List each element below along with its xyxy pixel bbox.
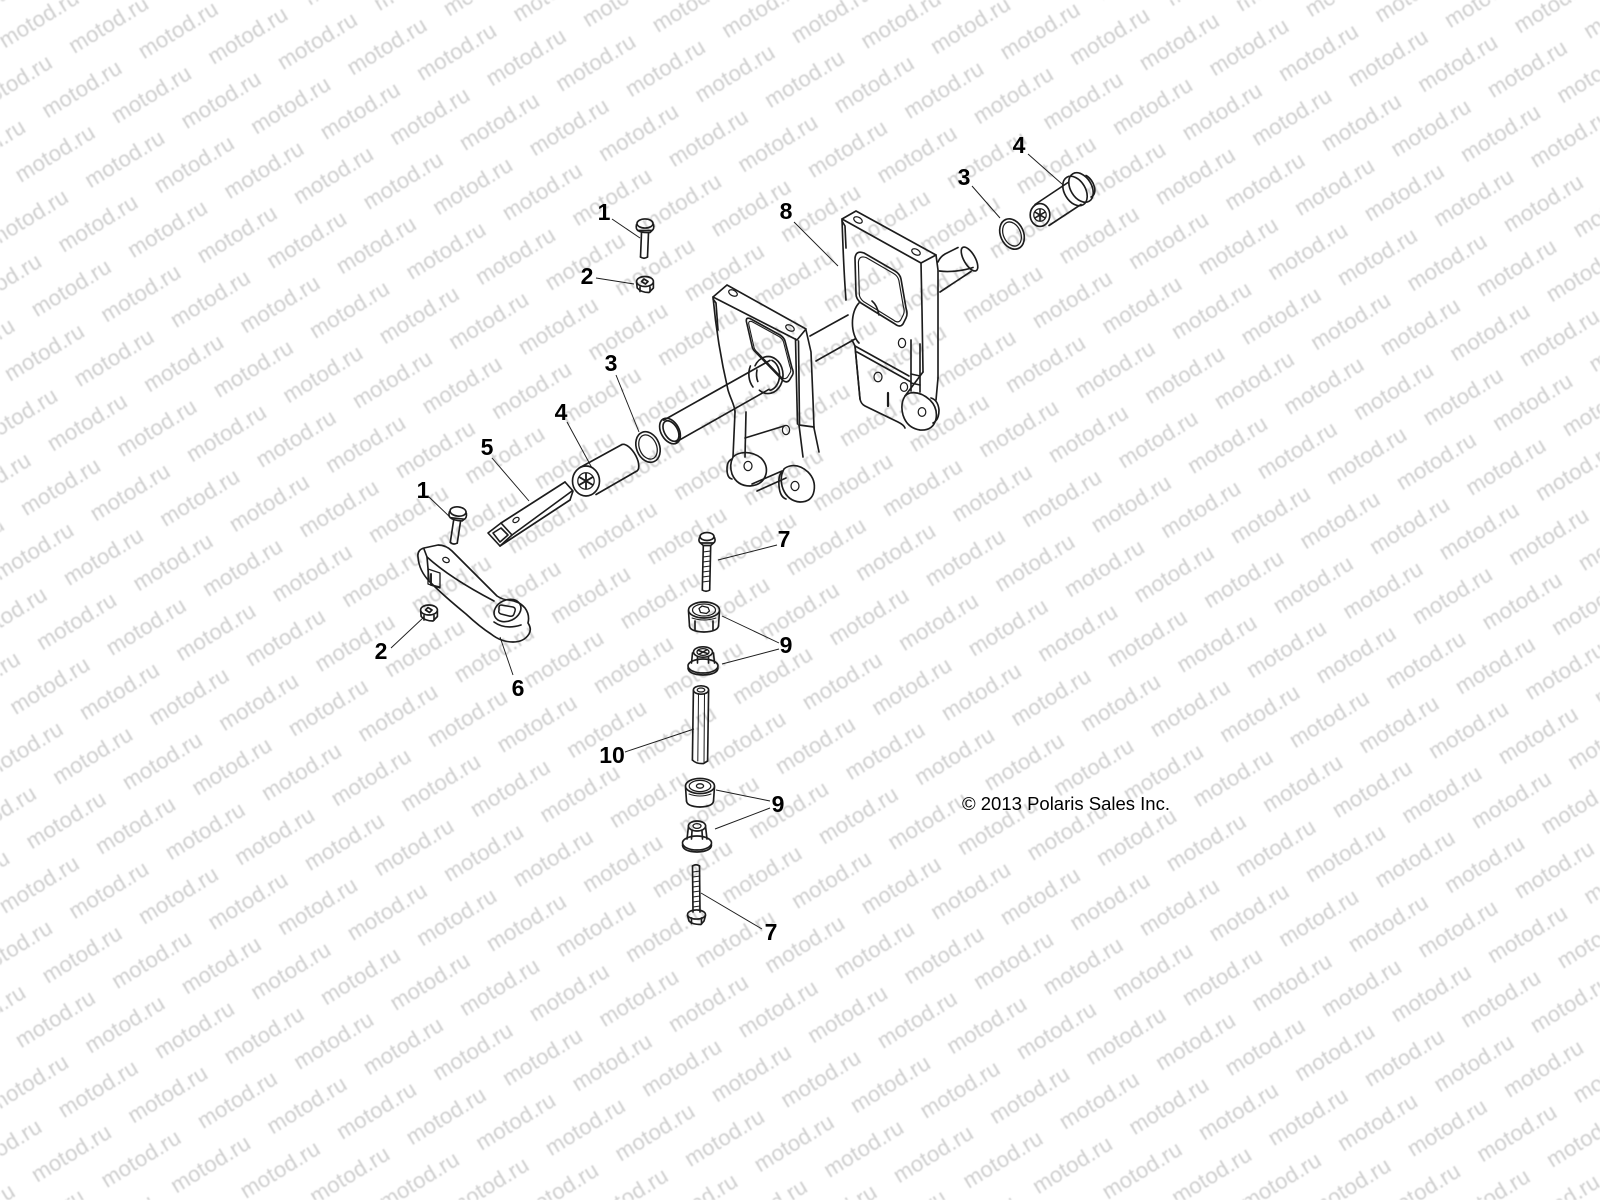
svg-text:3: 3 — [958, 164, 971, 190]
svg-text:9: 9 — [780, 632, 793, 658]
svg-text:7: 7 — [778, 526, 791, 552]
svg-text:1: 1 — [598, 199, 611, 225]
svg-text:5: 5 — [481, 434, 494, 460]
svg-text:4: 4 — [1013, 132, 1026, 158]
svg-text:10: 10 — [599, 742, 625, 768]
svg-text:8: 8 — [780, 198, 793, 224]
svg-text:7: 7 — [765, 919, 778, 945]
svg-text:9: 9 — [772, 791, 785, 817]
svg-text:2: 2 — [375, 638, 388, 664]
svg-text:4: 4 — [555, 399, 568, 425]
svg-text:2: 2 — [581, 263, 594, 289]
svg-text:6: 6 — [512, 675, 525, 701]
svg-text:1: 1 — [417, 477, 430, 503]
svg-text:3: 3 — [605, 350, 618, 376]
svg-text:© 2013 Polaris Sales Inc.: © 2013 Polaris Sales Inc. — [962, 793, 1170, 814]
